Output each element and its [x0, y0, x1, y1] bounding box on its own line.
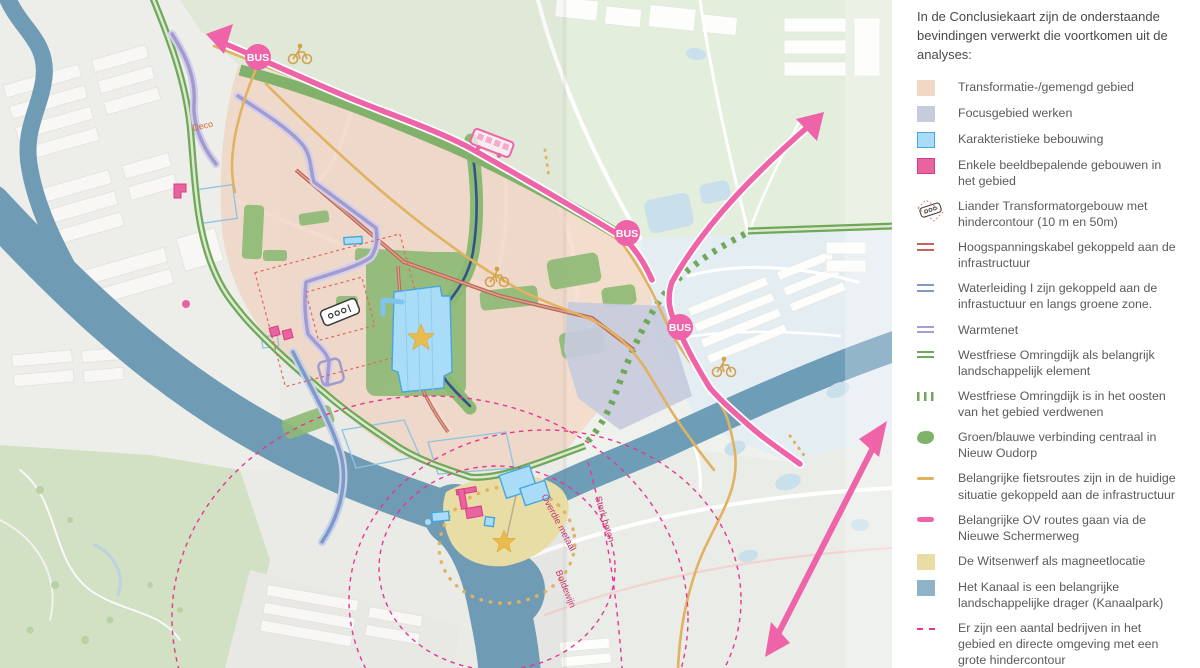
legend-item: Transformatie-/gemengd gebied [917, 79, 1180, 96]
legend-item-label: Hoogspanningskabel gekoppeld aan de infr… [958, 239, 1180, 271]
legend-item-label: De Witsenwerf als magneetlocatie [958, 553, 1145, 569]
legend-panel: In de Conclusiekaart zijn de onderstaand… [892, 0, 1200, 668]
legend-item-label: Warmtenet [958, 322, 1018, 338]
legend-item: Karakteristieke bebouwing [917, 131, 1180, 148]
legend-item-label: Belangrijke OV routes gaan via de Nieuwe… [958, 512, 1180, 544]
warmtenet-swatch [917, 326, 934, 334]
conclusiekaart-page: BUS BUS BUS Deco Overdie metaal Sterk be… [0, 0, 1200, 668]
legend-intro: In de Conclusiekaart zijn de onderstaand… [917, 8, 1180, 65]
legend-item-label: Transformatie-/gemengd gebied [958, 79, 1134, 95]
legend-item: Warmtenet [917, 322, 1180, 338]
legend-item: Focusgebied werken [917, 105, 1180, 122]
witsenwerf-swatch [917, 554, 935, 570]
legend-item: Westfriese Omringdijk als belangrijk lan… [917, 347, 1180, 379]
legend-item-label: Focusgebied werken [958, 105, 1072, 121]
focusgebied-swatch [917, 106, 935, 122]
bus-badge-label: BUS [247, 52, 269, 64]
legend-item: Belangrijke fietsroutes zijn in de huidi… [917, 470, 1180, 502]
transformatie-swatch [917, 80, 935, 96]
bus-badge-label: BUS [616, 228, 638, 240]
hindercontour-swatch [917, 628, 935, 630]
bus-badge: BUS [667, 314, 693, 340]
legend-item-label: Enkele beeldbepalende gebouwen in het ge… [958, 157, 1180, 189]
beeldbepalend-swatch [917, 158, 935, 174]
legend-item: Het Kanaal is een belangrijke landschapp… [917, 579, 1180, 611]
legend-item: Belangrijke OV routes gaan via de Nieuwe… [917, 512, 1180, 544]
liander-transformator-icon [917, 199, 944, 222]
groen-blauw-swatch [916, 430, 935, 445]
legend-item: Hoogspanningskabel gekoppeld aan de infr… [917, 239, 1180, 271]
legend-item-label: Liander Transformatorgebouw met hinderco… [958, 198, 1180, 230]
legend-item: De Witsenwerf als magneetlocatie [917, 553, 1180, 570]
kanaal-swatch [917, 580, 935, 596]
omringdijk-verdwenen-swatch [917, 392, 935, 401]
bus-badge: BUS [245, 44, 271, 70]
ov-route-swatch [917, 517, 934, 523]
legend-item-label: Belangrijke fietsroutes zijn in de huidi… [958, 470, 1180, 502]
hoogspanningskabel-swatch [917, 243, 934, 251]
legend-item-label: Er zijn een aantal bedrijven in het gebi… [958, 620, 1180, 668]
legend-item-label: Westfriese Omringdijk is in het oosten v… [958, 388, 1180, 420]
legend-item-label: Groen/blauwe verbinding centraal in Nieu… [958, 429, 1180, 461]
legend-item-label: Het Kanaal is een belangrijke landschapp… [958, 579, 1180, 611]
bus-badge-label: BUS [669, 322, 691, 334]
legend-item: Er zijn een aantal bedrijven in het gebi… [917, 620, 1180, 668]
legend-list: Transformatie-/gemengd gebied Focusgebie… [917, 79, 1180, 668]
legend-item: Westfriese Omringdijk is in het oosten v… [917, 388, 1180, 420]
legend-item: Groen/blauwe verbinding centraal in Nieu… [917, 429, 1180, 461]
legend-item-label: Karakteristieke bebouwing [958, 131, 1103, 147]
waterleiding-swatch [917, 284, 934, 292]
omringdijk-swatch [917, 351, 934, 359]
legend-item: Waterleiding I zijn gekoppeld aan de inf… [917, 280, 1180, 312]
legend-item: Liander Transformatorgebouw met hinderco… [917, 198, 1180, 230]
legend-item-label: Waterleiding I zijn gekoppeld aan de inf… [958, 280, 1180, 312]
legend-item-label: Westfriese Omringdijk als belangrijk lan… [958, 347, 1180, 379]
fietsroute-swatch [917, 477, 934, 480]
karakteristiek-swatch [917, 132, 935, 148]
conclusiekaart-map: BUS BUS BUS Deco Overdie metaal Sterk be… [0, 0, 892, 668]
bus-badge: BUS [614, 220, 640, 246]
legend-item: Enkele beeldbepalende gebouwen in het ge… [917, 157, 1180, 189]
map-canvas: BUS BUS BUS Deco Overdie metaal Sterk be… [0, 0, 892, 668]
